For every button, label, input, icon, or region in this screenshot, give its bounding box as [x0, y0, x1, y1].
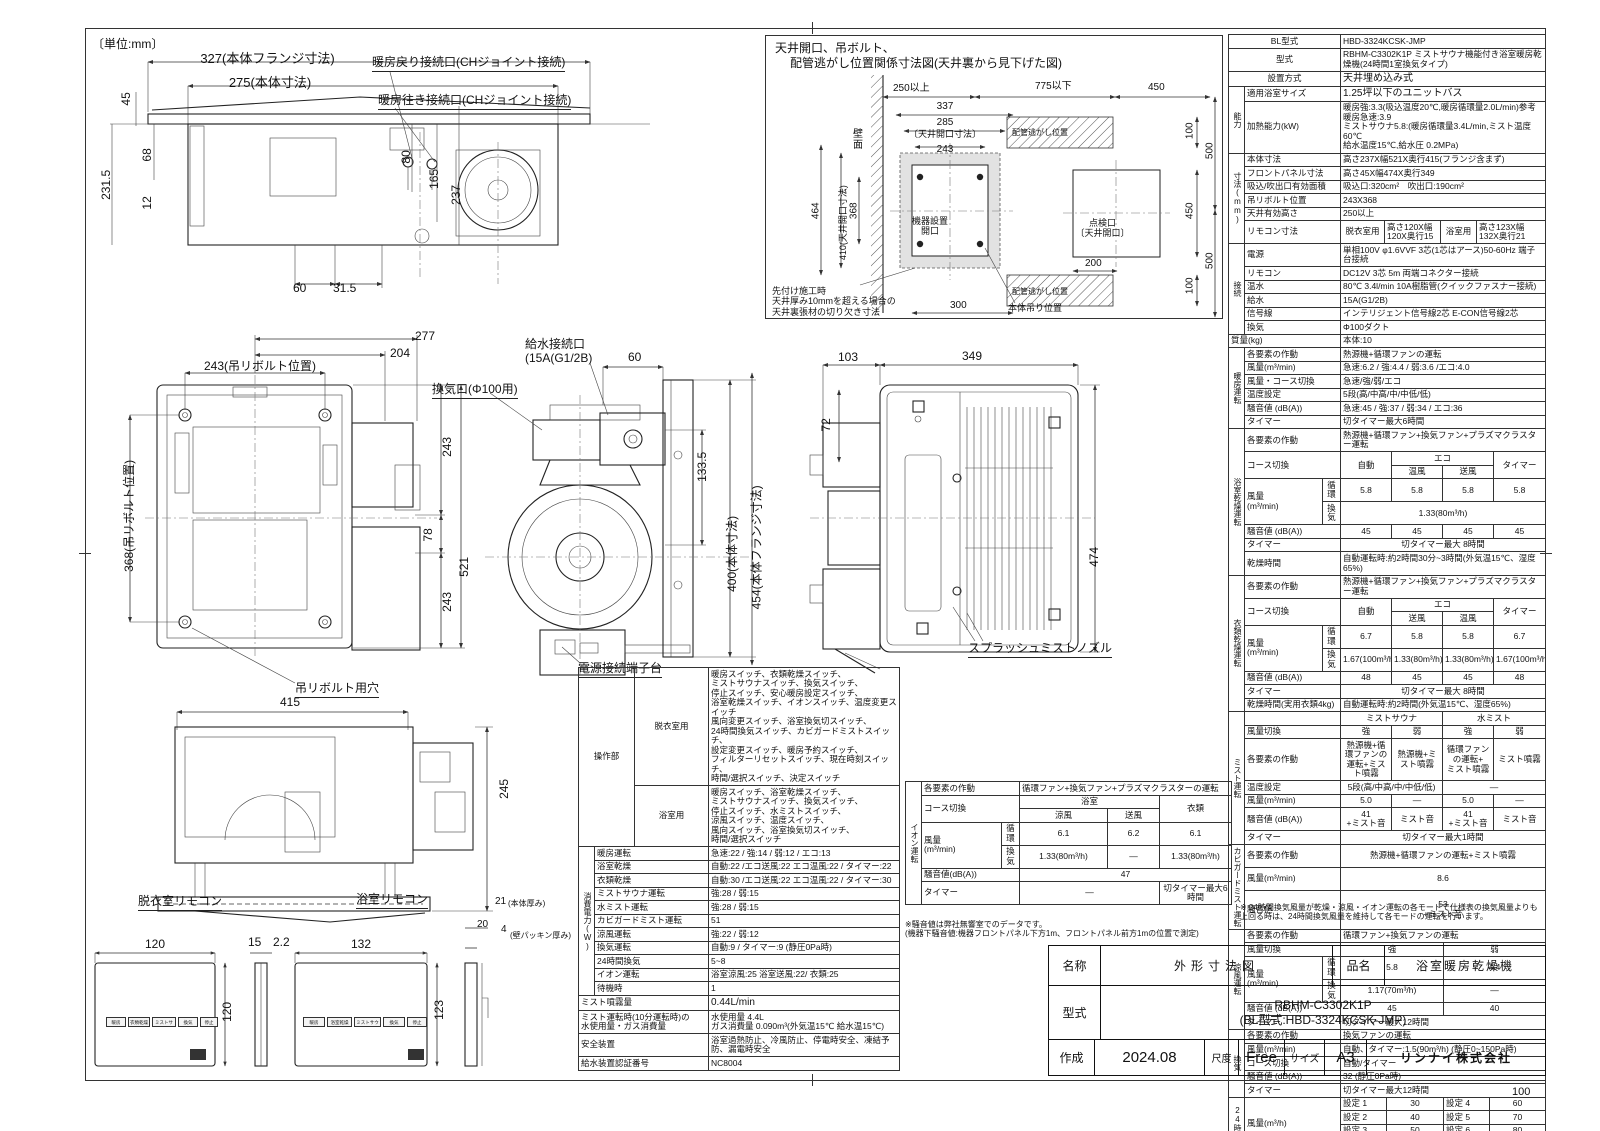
- register-tick: [812, 22, 813, 34]
- creation-date: 2024.08: [1095, 1039, 1205, 1075]
- row-label: タイマー: [1245, 1084, 1341, 1098]
- dim-label: 349: [962, 350, 982, 364]
- row-label: フロントパネル寸法: [1245, 167, 1341, 181]
- col-header: 水ミスト: [1443, 712, 1546, 726]
- dim-label: 20: [477, 919, 488, 931]
- company-name: リンナイ株式会社: [1367, 1039, 1546, 1075]
- value-cell: 1.33(80m³/h): [1341, 502, 1546, 525]
- value-cell: ミスト噴霧: [1494, 739, 1546, 781]
- dim-label: 68: [141, 148, 155, 161]
- paper-size: A3: [1325, 1039, 1367, 1075]
- row-label: 騒音値 (dB(A)): [1245, 671, 1341, 685]
- row-label: 24時間換気: [595, 955, 709, 969]
- remote-button[interactable]: ミストサウナ: [354, 1017, 381, 1027]
- value-cell: 強:22 / 弱:12: [709, 928, 900, 942]
- value-cell: 243X368: [1341, 194, 1546, 208]
- inspection-opening-label: 点検口 〔天井開口〕: [1075, 218, 1130, 239]
- drawing-name: 外形寸法図: [1101, 946, 1333, 986]
- row-label: 温度設定: [1245, 388, 1341, 402]
- row-label: 風量(m³/h): [1245, 1097, 1341, 1131]
- value-cell: 高さ237X幅521X奥行415(フランジ含まず): [1341, 153, 1546, 167]
- group-label: 浴室乾燥運転: [1229, 429, 1245, 575]
- row-label: 風量(m³/min): [1245, 794, 1341, 808]
- row-label: 天井有効高さ: [1245, 207, 1341, 221]
- row-label: BL型式: [1229, 35, 1341, 49]
- row-label: リモコン: [1245, 267, 1341, 281]
- value-cell: DC12V 3芯 5m 両端コネクター接続: [1341, 267, 1546, 281]
- value-cell: 51: [709, 914, 900, 928]
- value-cell: 70: [1490, 1111, 1546, 1125]
- register-tick: [812, 1074, 813, 1086]
- value-cell: 自動:30 /エコ送風:22 エコ温風:22 / タイマー:30: [709, 874, 900, 888]
- row-label: コース切換: [1245, 452, 1341, 479]
- row-label: 各要素の作動: [1245, 844, 1341, 867]
- value-cell: 急速/強/弱/エコ: [1341, 375, 1546, 389]
- row-label: 給水: [1245, 294, 1341, 308]
- value-cell: 高さ120X幅120X奥行15: [1385, 221, 1441, 244]
- row-label: 電源: [1245, 244, 1341, 267]
- row-label: 水ミスト運転: [595, 901, 709, 915]
- value-cell: 5.8: [1392, 625, 1443, 648]
- value-cell: 8.6: [1341, 867, 1546, 890]
- value-cell: 1: [709, 982, 900, 996]
- remote-button[interactable]: 換気: [383, 1017, 405, 1027]
- value-cell: 5.8: [1443, 479, 1494, 502]
- value-cell: 1.25坪以下のユニットバス: [1341, 86, 1546, 101]
- value-cell: ―: [1494, 794, 1546, 808]
- row-label: 乾燥時間: [1245, 552, 1341, 575]
- value-cell: 50: [1387, 1124, 1444, 1131]
- value-cell: 自動運転時:約2時間(外気温15℃、湿度65%): [1341, 698, 1546, 712]
- row-label: カビガードミスト運転: [595, 914, 709, 928]
- row-label: 各要素の作動: [1245, 739, 1341, 781]
- value-cell: ―: [1443, 781, 1546, 795]
- row-label: 各要素の作動: [1245, 429, 1341, 452]
- ceiling-diagram-svg: [765, 35, 1223, 319]
- value-cell: 自動運転時:約2時間30分~3時間(外気温15℃、湿度65%): [1341, 552, 1546, 575]
- value-cell: 暖房スイッチ、浴室乾燥スイッチ、 ミストサウナスイッチ、換気スイッチ、 停止スイ…: [709, 786, 900, 847]
- value-cell: 熱源機+循環ファンの 運転+ミスト噴霧: [1341, 739, 1392, 781]
- dim-label: 450: [1148, 82, 1165, 94]
- row-label: 風量 (m³/min): [1245, 479, 1323, 525]
- group-label: 消費電力(W): [579, 847, 595, 996]
- col-header: 送風: [1443, 465, 1494, 479]
- value-cell: 41 +ミスト音: [1341, 808, 1392, 831]
- row-label: 適用浴室サイズ: [1245, 86, 1341, 101]
- row-label: 各要素の作動: [922, 782, 1020, 796]
- dim-label: 300: [950, 300, 967, 312]
- value-cell: 本体:10: [1341, 334, 1546, 348]
- dim-label: 245: [498, 779, 512, 799]
- value-cell: 浴室涼風:25 浴室送風:22/ 衣類:25: [709, 968, 900, 982]
- dim-label: 775以下: [1035, 81, 1072, 93]
- value-cell: 急速:45 / 強:37 / 弱:34 / エコ:36: [1341, 402, 1546, 416]
- sub-label: 設定 2: [1341, 1111, 1387, 1125]
- field-label: 名称: [1049, 946, 1101, 986]
- dim-label: 15: [248, 936, 261, 950]
- row-label: 風量切換: [1245, 725, 1341, 739]
- dim-note: (本体厚み): [508, 899, 545, 908]
- vent-port-callout: 換気口(Φ100用): [432, 383, 518, 399]
- value-cell: RBHM-C3302K1P ミストサウナ機能付き浴室暖房乾燥機(24時間1室換気…: [1341, 48, 1546, 71]
- value-cell: 強:28 / 弱:15: [709, 901, 900, 915]
- diagram-title: 配管逃がし位置関係寸法図(天井裏から見下げた図): [790, 57, 1062, 71]
- diagram-title: 天井開口、吊ボルト、: [775, 42, 895, 56]
- dim-label: 21: [495, 896, 506, 908]
- dim-label: 204: [390, 347, 410, 361]
- value-cell: 浴室過熱防止、冷風防止、停電時安全、凍結予防、漏電時安全: [709, 1034, 900, 1057]
- remote2-buttons: 暖房 浴室乾燥 ミストサウナ 換気 停止: [303, 1017, 427, 1027]
- value-cell: 48: [1494, 671, 1546, 685]
- row-label: 乾燥時間(実用衣類4kg): [1245, 698, 1341, 712]
- sub-label: 循環: [1323, 625, 1341, 648]
- dim-label: 368(吊リボルト位置): [123, 432, 137, 572]
- dim-label: 250以上: [893, 83, 930, 95]
- value-cell: 80: [1490, 1124, 1546, 1131]
- value-cell: ミスト音: [1494, 808, 1546, 831]
- sub-label: 循環: [1002, 822, 1020, 845]
- value-cell: 急速:22 / 強:14 / 弱:12 / エコ:13: [709, 847, 900, 861]
- remote-button[interactable]: 浴室乾燥: [327, 1017, 352, 1027]
- value-cell: 循環ファン の運転+ ミスト噴霧: [1443, 739, 1494, 781]
- value-cell: 1.33(80m³/h): [1392, 648, 1443, 671]
- dim-label: 2.2: [273, 936, 290, 950]
- value-cell: 5~8: [709, 955, 900, 969]
- value-cell: 30: [1387, 1097, 1444, 1111]
- col-header: 自動: [1341, 598, 1392, 625]
- value-cell: 吸込口:320cm² 吹出口:190cm²: [1341, 180, 1546, 194]
- dim-label: 415: [280, 696, 300, 710]
- scale-value: Free: [1239, 1039, 1285, 1075]
- sub-label: 設定 1: [1341, 1097, 1387, 1111]
- field-label: 尺度: [1205, 1039, 1239, 1075]
- value-cell: 5.8: [1443, 625, 1494, 648]
- value-cell: 切タイマー最大12時間: [1341, 1084, 1546, 1098]
- dim-label: 464: [811, 202, 823, 219]
- row-label: 換気: [1245, 321, 1341, 335]
- group-label: イオン運転: [906, 782, 922, 905]
- value-cell: 47: [1020, 868, 1232, 882]
- value-cell: 水使用量 4.4L ガス消費量 0.090m³(外気温15℃ 給水温15℃): [709, 1011, 900, 1034]
- dim-label: 12: [141, 196, 155, 209]
- row-label: 給水装置認証番号: [579, 1057, 709, 1071]
- group-label: 24時間換気: [1229, 1097, 1245, 1131]
- value-cell: 80℃ 3.4l/min 10A樹脂管(クイックファスナー接続): [1341, 280, 1546, 294]
- dim-label: 410(天井開口寸法): [838, 150, 848, 260]
- value-cell: 暖房スイッチ、衣類乾燥スイッチ、 ミストサウナスイッチ、換気スイッチ、 停止スイ…: [709, 668, 900, 786]
- remote-button[interactable]: 暖房: [106, 1017, 126, 1027]
- field-label: 品名: [1333, 946, 1385, 986]
- row-label: 各要素の作動: [1245, 929, 1341, 943]
- value-cell: 5段(高/中高/中/中低/低): [1341, 388, 1546, 402]
- value-cell: 強: [1341, 725, 1392, 739]
- dim-label: 72: [820, 418, 834, 431]
- ion-note: ※騒音値は弊社無響室でのデータです。 (機器下騒音値:機器フロントパネル下方1m…: [905, 920, 1199, 938]
- remote-button[interactable]: 停止: [200, 1017, 218, 1027]
- remote-button[interactable]: 暖房: [303, 1017, 325, 1027]
- row-label: リモコン寸法: [1245, 221, 1341, 244]
- field-label: 型式: [1049, 986, 1101, 1040]
- ceiling-note: 先付け施工時 天井厚み10mmを超える場合の 天井裏張材の切り欠き寸法: [772, 286, 896, 317]
- sub-label: 設定 6: [1444, 1124, 1490, 1131]
- value-cell: 15A(G1/2B): [1341, 294, 1546, 308]
- value-cell: 1.33(80m³/h): [1160, 845, 1232, 868]
- pipe-escape-label: 配管逃がし位置: [1012, 128, 1068, 137]
- row-label: 換気運転: [595, 941, 709, 955]
- value-cell: 5.8: [1494, 479, 1546, 502]
- group-label: 操作部: [579, 668, 635, 847]
- row-label: 風量(m³/min): [1245, 361, 1341, 375]
- row-label: 風量(m³/min): [1245, 867, 1341, 890]
- col-header: 送風: [1108, 809, 1160, 823]
- value-cell: ―: [1108, 845, 1160, 868]
- value-cell: 切タイマー最大1時間: [1341, 831, 1546, 845]
- dim-label: 120: [221, 1002, 235, 1022]
- value-cell: 0.44L/min: [709, 995, 900, 1010]
- row-label: 型式: [1229, 48, 1341, 71]
- row-label: 質量(kg): [1229, 334, 1341, 348]
- value-cell: 45: [1392, 671, 1443, 685]
- remote1-buttons: 暖房 衣類乾燥 ミストサウナ 換気 停止: [106, 1017, 218, 1027]
- row-label: コース切換: [1245, 598, 1341, 625]
- value-cell: 天井埋め込み式: [1341, 71, 1546, 86]
- value-cell: 強: [1443, 725, 1494, 739]
- sub-label: 設定 4: [1444, 1097, 1490, 1111]
- remote-button[interactable]: 換気: [178, 1017, 198, 1027]
- dim-label: 450: [1185, 202, 1197, 219]
- value-cell: 単相100V φ1.6VVF 3芯(1芯はアース)50-60Hz 端子台接続: [1341, 244, 1546, 267]
- dim-label: 368: [849, 202, 861, 219]
- drawing-sheet: 〔単位:mm〕 100 327(本体フランジ寸法) 275(本体寸法) 暖房戻り…: [0, 0, 1600, 1131]
- hanging-position-label: 本体吊り位置: [1008, 303, 1062, 313]
- col-header: エコ: [1392, 452, 1494, 466]
- value-cell: 熱源機+循環ファンの運転+ミスト噴霧: [1341, 844, 1546, 867]
- row-label: 設置方式: [1229, 71, 1341, 86]
- col-header: 浴室: [1020, 795, 1160, 809]
- field-label: サイズ: [1285, 1039, 1325, 1075]
- value-cell: 45: [1443, 525, 1494, 539]
- dim-label: 474: [1088, 547, 1102, 567]
- dim-label: 500: [1205, 142, 1217, 159]
- dim-label: 103: [838, 351, 858, 365]
- value-cell: 急速:6.2 / 強:4.4 / 弱:3.6 /エコ:4.0: [1341, 361, 1546, 375]
- row-label: 加熱能力(kW): [1245, 101, 1341, 153]
- row-label: 暖房運転: [595, 847, 709, 861]
- remotes-svg: [90, 903, 535, 1075]
- value-cell: 暖房強:3.3(吸込温度20℃,暖房循環量2.0L/min)参考 暖房急速:3.…: [1341, 101, 1546, 153]
- row-label: 浴室用: [635, 786, 709, 847]
- value-cell: 高さ45X幅474X奥行349: [1341, 167, 1546, 181]
- value-cell: 48: [1341, 671, 1392, 685]
- water-inlet-callout: 給水接続口 (15A(G1/2B): [525, 338, 592, 366]
- value-cell: 切タイマー最大 8時間: [1341, 685, 1546, 699]
- value-cell: 6.2: [1108, 822, 1160, 845]
- value-cell: インテリジェント信号線2芯 E-CON信号線2芯: [1341, 307, 1546, 321]
- value-cell: 5.8: [1392, 479, 1443, 502]
- row-label: 風量 (m³/min): [922, 822, 1002, 868]
- dim-label: 165: [428, 169, 442, 189]
- value-cell: 45: [1494, 525, 1546, 539]
- value-cell: 1.33(80m³/h): [1443, 648, 1494, 671]
- row-label: 騒音値 (dB(A)): [1245, 402, 1341, 416]
- row-label: タイマー: [1245, 538, 1341, 552]
- value-cell: 250以上: [1341, 207, 1546, 221]
- plan-view-svg: [95, 325, 480, 697]
- row-label: 吸込/吹出口有効面積: [1245, 180, 1341, 194]
- row-label: ミスト運転時(10分運転時)の 水使用量・ガス消費量: [579, 1011, 709, 1034]
- row-label: [1245, 712, 1341, 726]
- col-header: 自動: [1341, 452, 1392, 479]
- row-label: 衣類乾燥: [595, 874, 709, 888]
- mist-nozzle-callout: スプラッシュミストノズル: [968, 642, 1112, 658]
- value-cell: 60: [1490, 1097, 1546, 1111]
- dim-label: 31.5: [333, 282, 356, 296]
- value-cell: NC8004: [709, 1057, 900, 1071]
- value-cell: 強:28 / 弱:15: [709, 887, 900, 901]
- value-cell: 40: [1387, 1111, 1444, 1125]
- row-label: 本体寸法: [1245, 153, 1341, 167]
- dim-label: 45: [120, 92, 134, 105]
- model-number: RBHM-C3302K1P (BL型式:HBD-3324KCSK-JMP): [1101, 986, 1546, 1040]
- value-cell: 循環ファン+換気ファンの運転: [1341, 929, 1546, 943]
- product-name: 浴室暖房乾燥機: [1385, 946, 1546, 986]
- row-label: 騒音値 (dB(A)): [1245, 808, 1341, 831]
- col-header: ミストサウナ: [1341, 712, 1443, 726]
- row-label: タイマー: [1245, 685, 1341, 699]
- dim-label: 285: [915, 117, 975, 129]
- dim-label: 243(吊リボルト位置): [190, 360, 330, 374]
- sub-label: 浴室用: [1441, 221, 1477, 244]
- dim-label: 454(本体フランジ寸法): [751, 474, 765, 609]
- controls-power-table: 操作部 脱衣室用 暖房スイッチ、衣類乾燥スイッチ、 ミストサウナスイッチ、換気ス…: [578, 668, 900, 1071]
- row-label: 待機時: [595, 982, 709, 996]
- value-cell: 熱源機+循環ファン+換気ファン+プラズマクラスター運転: [1341, 429, 1546, 452]
- group-label: 接続: [1229, 244, 1245, 335]
- sub-label: 換気: [1323, 502, 1341, 525]
- row-label: 風量・コース切換: [1245, 375, 1341, 389]
- dim-note: (壁パッキン厚み): [510, 931, 571, 940]
- row-label: 信号線: [1245, 307, 1341, 321]
- ion-table: イオン運転 各要素の作動 循環ファン+換気ファン+プラズマクラスターの運転 コー…: [905, 782, 1232, 905]
- row-label: ミスト噴霧量: [579, 995, 709, 1010]
- value-cell: ―: [1392, 794, 1443, 808]
- col-header: 温風: [1392, 465, 1443, 479]
- value-cell: 熱源機+循環ファン+換気ファン+プラズマクラスター運転: [1341, 575, 1546, 598]
- row-label: コース切換: [922, 795, 1020, 822]
- value-cell: 切タイマー最大6時間: [1341, 415, 1546, 429]
- side-view-lower-svg: [135, 672, 535, 922]
- row-label: 温度設定: [1245, 781, 1341, 795]
- sub-label: 設定 3: [1341, 1124, 1387, 1131]
- col-header: 涼風: [1020, 809, 1108, 823]
- value-cell: 循環ファン+換気ファン+プラズマクラスターの運転: [1020, 782, 1232, 796]
- remote-button[interactable]: 衣類乾燥: [128, 1017, 150, 1027]
- value-cell: ミスト音: [1392, 808, 1443, 831]
- group-label: 衣類乾燥運転: [1229, 575, 1245, 712]
- pipe-escape-label: 配管逃がし位置: [1012, 287, 1068, 296]
- sub-label: 循環: [1323, 479, 1341, 502]
- value-cell: 6.1: [1020, 822, 1108, 845]
- dim-label: 237: [450, 185, 464, 205]
- dim-label: 132: [341, 938, 381, 952]
- unit-opening-label: 機器設置 開口: [905, 216, 955, 237]
- row-label: 風量 (m³/min): [1245, 625, 1323, 671]
- row-label: 騒音値 (dB(A)): [1245, 525, 1341, 539]
- dim-label: 120: [135, 938, 175, 952]
- value-cell: ―: [1020, 882, 1160, 905]
- row-label: 騒音値(dB(A)): [922, 868, 1020, 882]
- remote-button[interactable]: 停止: [407, 1017, 427, 1027]
- row-label: タイマー: [1245, 831, 1341, 845]
- sub-label: 換気: [1323, 648, 1341, 671]
- value-cell: 熱源機+ミスト噴霧: [1392, 739, 1443, 781]
- dim-label: 400(本体寸法): [726, 482, 740, 592]
- value-cell: 45: [1392, 525, 1443, 539]
- dim-label: 275(本体寸法): [195, 76, 345, 91]
- value-cell: 6.1: [1160, 822, 1232, 845]
- sub-label: 設定 5: [1444, 1111, 1490, 1125]
- dressing-room-remote-title: 脱衣室リモコン: [138, 895, 222, 911]
- value-cell: 5.0: [1341, 794, 1392, 808]
- remote-button[interactable]: ミストサウナ: [152, 1017, 176, 1027]
- value-cell: 熱源機+循環ファンの運転: [1341, 348, 1546, 362]
- row-label: 各要素の作動: [1245, 348, 1341, 362]
- dim-label: 〔天井開口寸法〕: [903, 129, 987, 139]
- group-label: 能力: [1229, 86, 1245, 153]
- value-cell: 6.7: [1494, 625, 1546, 648]
- row-label: イオン運転: [595, 968, 709, 982]
- value-cell: 5段(高/中高/中/中低/低): [1341, 781, 1443, 795]
- dim-label: 337: [915, 101, 975, 113]
- value-cell: 自動:9 / タイマー:9 (静圧0Pa時): [709, 941, 900, 955]
- row-label: タイマー: [922, 882, 1020, 905]
- row-label: タイマー: [1245, 415, 1341, 429]
- value-cell: 41 +ミスト音: [1443, 808, 1494, 831]
- value-cell: 切タイマー最大 8時間: [1341, 538, 1546, 552]
- dim-label: 4: [501, 924, 507, 936]
- row-label: ミストサウナ運転: [595, 887, 709, 901]
- dim-label: 100: [1185, 122, 1197, 139]
- value-cell: 6.7: [1341, 625, 1392, 648]
- value-cell: 高さ123X幅132X奥行21: [1477, 221, 1546, 244]
- dim-label: 327(本体フランジ寸法): [155, 52, 380, 67]
- value-cell: HBD-3324KCSK-JMP: [1341, 35, 1546, 49]
- value-cell: 45: [1341, 525, 1392, 539]
- callout: 暖房戻り接続口(CHジョイント接続): [372, 56, 565, 72]
- dim-label: 60: [293, 282, 306, 296]
- value-cell: Φ100ダクト: [1341, 321, 1546, 335]
- sub-label: 換気: [1002, 845, 1020, 868]
- dim-label: 100: [1185, 277, 1197, 294]
- field-label: 作成: [1049, 1039, 1095, 1075]
- row-label: 吊リボルト位置: [1245, 194, 1341, 208]
- value-cell: 切タイマー最大6時間: [1160, 882, 1232, 905]
- dim-label: 231.5: [100, 170, 114, 200]
- row-label: 涼風運転: [595, 928, 709, 942]
- value-cell: 1.33(80m³/h): [1020, 845, 1108, 868]
- group-label: 暖房運転: [1229, 348, 1245, 429]
- value-cell: 1.67(100m³/h): [1494, 648, 1546, 671]
- value-cell: 弱: [1494, 725, 1546, 739]
- col-header: 温風: [1443, 612, 1494, 626]
- value-cell: 弱: [1392, 725, 1443, 739]
- row-label: 温水: [1245, 280, 1341, 294]
- dim-label: 243: [920, 144, 970, 156]
- dim-label: 123: [433, 1000, 447, 1020]
- sub-label: 脱衣室用: [1341, 221, 1385, 244]
- col-header: エコ: [1392, 598, 1494, 612]
- col-header: 送風: [1392, 612, 1443, 626]
